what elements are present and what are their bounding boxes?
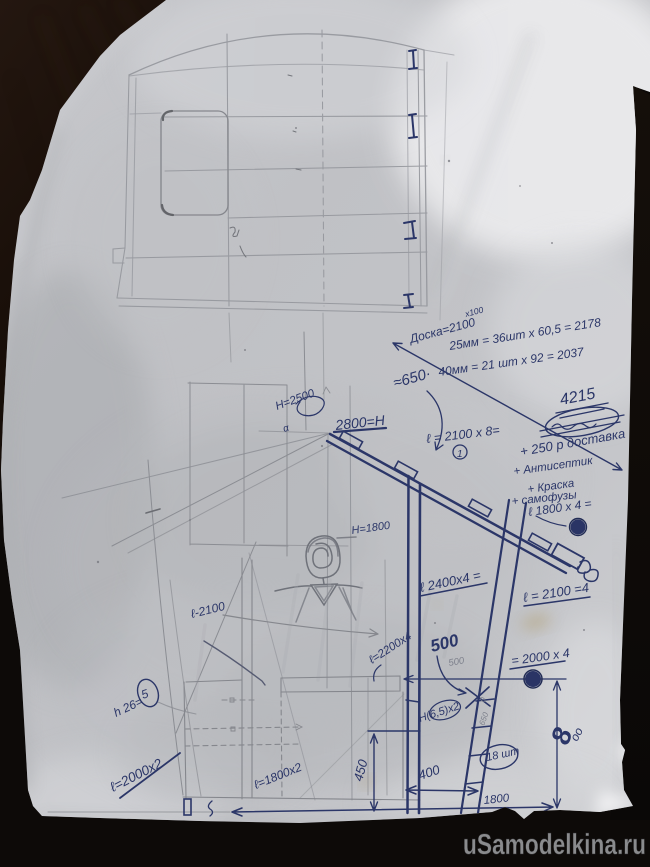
svg-text:1: 1	[457, 449, 463, 460]
svg-text:uSamodelkina.ru: uSamodelkina.ru	[463, 829, 646, 861]
